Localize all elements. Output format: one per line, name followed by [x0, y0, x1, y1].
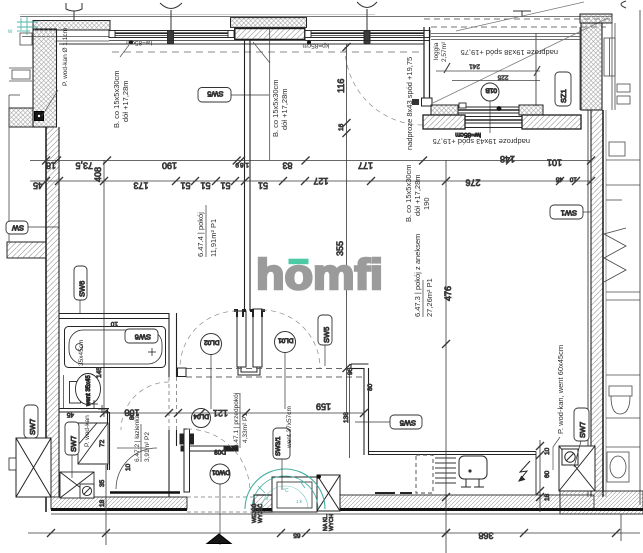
svg-text:35: 35: [99, 479, 106, 487]
svg-text:45: 45: [555, 176, 563, 183]
svg-text:10: 10: [544, 447, 551, 455]
svg-text:dół +17,28m: dół +17,28m: [413, 175, 422, 217]
svg-text:18: 18: [99, 499, 106, 507]
svg-text:225: 225: [497, 74, 508, 81]
svg-text:WYCH: WYCH: [329, 514, 335, 531]
svg-text:B. co 15x5x30cm: B. co 15x5x30cm: [404, 164, 413, 222]
svg-text:6.47.2 | łazienka: 6.47.2 | łazienka: [134, 414, 141, 462]
svg-text:83: 83: [282, 161, 292, 171]
svg-text:nadproze 19x43 spód +19,75: nadproze 19x43 spód +19,75: [433, 137, 530, 146]
svg-text:27,26m² P1: 27,26m² P1: [425, 278, 434, 317]
svg-text:241: 241: [469, 63, 480, 70]
svg-text:3,91m² P2: 3,91m² P2: [144, 432, 151, 462]
svg-text:P. wod-kan Ø 1,1cm: P. wod-kan Ø 1,1cm: [62, 28, 69, 86]
svg-text:loggia: loggia: [433, 42, 440, 60]
svg-text:10: 10: [125, 463, 132, 471]
svg-text:190: 190: [162, 161, 177, 171]
svg-text:11,91m² P1: 11,91m² P1: [209, 219, 218, 257]
svg-text:476: 476: [443, 286, 453, 301]
svg-text:SW7: SW7: [28, 419, 37, 435]
svg-text:SW5: SW5: [322, 327, 331, 343]
svg-text:45: 45: [33, 181, 43, 191]
svg-text:90: 90: [347, 367, 354, 375]
svg-text:18: 18: [46, 161, 56, 171]
svg-text:kp=85cm: kp=85cm: [302, 42, 329, 49]
svg-text:went 35x45: went 35x45: [86, 375, 92, 407]
svg-text:nadproze 8x43 spód +19,75: nadproze 8x43 spód +19,75: [405, 57, 414, 150]
svg-text:w: w: [7, 29, 13, 35]
svg-text:121: 121: [213, 408, 228, 418]
svg-text:138: 138: [343, 412, 350, 423]
svg-text:51: 51: [200, 181, 210, 191]
svg-text:lw=85cm: lw=85cm: [455, 131, 481, 138]
svg-text:80: 80: [367, 383, 374, 391]
svg-text:DW01: DW01: [212, 469, 230, 476]
svg-text:SW3/1: SW3/1: [275, 436, 282, 456]
svg-text:116: 116: [336, 79, 346, 93]
svg-text:P. wod-kan: P. wod-kan: [84, 415, 91, 447]
svg-text:SW7: SW7: [69, 436, 78, 452]
svg-text:WYJŚĆ: WYJŚĆ: [256, 504, 264, 523]
svg-text:145: 145: [96, 367, 103, 378]
svg-text:homfi: homfi: [256, 251, 383, 299]
svg-text:B. co 15x5x30cm: B. co 15x5x30cm: [112, 70, 121, 128]
svg-text:SW6: SW6: [135, 333, 151, 342]
svg-text:190: 190: [422, 197, 431, 210]
svg-text:2,57m²: 2,57m²: [441, 41, 448, 62]
svg-text:D03: D03: [214, 448, 226, 455]
svg-text:16: 16: [338, 123, 345, 131]
svg-text:SW6: SW6: [78, 281, 87, 297]
svg-text:408: 408: [93, 167, 103, 182]
svg-text:51: 51: [258, 181, 268, 191]
svg-text:SW5: SW5: [207, 90, 223, 99]
svg-text:SW: SW: [11, 224, 24, 233]
svg-text:177: 177: [358, 161, 373, 171]
svg-text:45: 45: [66, 411, 74, 418]
svg-text:65: 65: [293, 532, 301, 539]
svg-text:DL01: DL01: [278, 337, 294, 344]
svg-text:368: 368: [478, 531, 493, 541]
svg-text:9: 9: [235, 161, 239, 168]
svg-text:B. co 15x5x30cm: B. co 15x5x30cm: [271, 79, 280, 137]
svg-text:1,6: 1,6: [240, 161, 249, 168]
svg-text:10: 10: [110, 320, 118, 327]
svg-text:159: 159: [316, 402, 331, 412]
svg-text:1:k: 1:k: [296, 499, 303, 504]
svg-text:SW1: SW1: [561, 209, 577, 218]
svg-text:73,5: 73,5: [75, 161, 93, 171]
svg-text:51: 51: [180, 181, 190, 191]
svg-text:dół +17,28m: dół +17,28m: [280, 89, 289, 131]
svg-text:WEJŚĆ: WEJŚĆ: [250, 504, 258, 523]
svg-text:101: 101: [547, 158, 562, 168]
svg-text:18: 18: [544, 493, 551, 501]
svg-text:6.47.3 | pokój z aneksem: 6.47.3 | pokój z aneksem: [413, 234, 422, 317]
svg-text:nadproze 19x38 spód +19,75: nadproze 19x38 spód +19,75: [461, 48, 558, 57]
svg-text:went 37x57cm: went 37x57cm: [286, 406, 293, 449]
svg-text:51: 51: [220, 181, 230, 191]
svg-text:°C: °C: [283, 488, 289, 494]
svg-text:01B: 01B: [485, 87, 497, 94]
svg-text:60: 60: [544, 470, 551, 478]
svg-text:6.47.4 | pokój: 6.47.4 | pokój: [196, 212, 205, 257]
svg-text:148: 148: [500, 154, 515, 164]
svg-text:6.47.1 | przedpokój: 6.47.1 | przedpokój: [233, 393, 240, 448]
svg-text:SZ1: SZ1: [559, 89, 568, 103]
svg-text:127: 127: [313, 176, 328, 186]
svg-text:10: 10: [569, 176, 577, 183]
svg-text:dół +17,28m: dół +17,28m: [121, 81, 130, 123]
svg-text:lw=85cm: lw=85cm: [126, 39, 152, 46]
svg-text:4,33m² P1: 4,33m² P1: [242, 413, 249, 443]
svg-text:DL02: DL02: [204, 339, 220, 346]
svg-text:SW7: SW7: [578, 422, 587, 438]
svg-text:72: 72: [99, 439, 106, 447]
svg-text:SW5: SW5: [400, 419, 416, 428]
svg-text:P. wod-kan, went 60x45cm: P. wod-kan, went 60x45cm: [556, 345, 565, 434]
svg-text:35x45cm: 35x45cm: [78, 340, 85, 366]
svg-text:173: 173: [133, 181, 148, 191]
svg-text:276: 276: [465, 178, 480, 188]
